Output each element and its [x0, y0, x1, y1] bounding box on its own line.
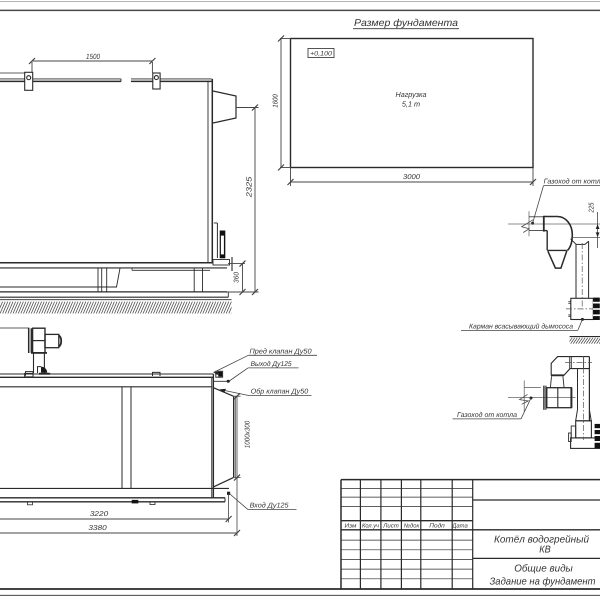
svg-text:1500: 1500: [86, 52, 101, 61]
svg-text:Лист: Лист: [382, 523, 399, 530]
svg-text:225: 225: [589, 202, 596, 213]
svg-text:Подп: Подп: [429, 523, 445, 530]
svg-text:3380: 3380: [88, 525, 106, 532]
svg-text:Общие виды: Общие виды: [514, 564, 573, 575]
svg-text:Задание на фундамент: Задание на фундамент: [490, 577, 596, 588]
svg-text:3000: 3000: [403, 174, 420, 181]
svg-text:Кол.уч: Кол.уч: [362, 523, 379, 530]
svg-text:+0,100: +0,100: [310, 51, 332, 58]
svg-text:Изм: Изм: [345, 523, 357, 530]
svg-text:Нагрузка: Нагрузка: [396, 90, 427, 99]
svg-text:Пред клапан Ду50: Пред клапан Ду50: [250, 348, 312, 356]
svg-text:5,1 т: 5,1 т: [402, 100, 420, 109]
svg-text:Дата: Дата: [451, 523, 468, 530]
svg-text:360: 360: [234, 272, 241, 283]
svg-text:Вход Ду125: Вход Ду125: [250, 502, 289, 510]
svg-text:3220: 3220: [90, 511, 108, 518]
svg-text:КВ: КВ: [539, 545, 551, 556]
svg-text:Газоход от котла: Газоход от котла: [544, 177, 600, 185]
svg-text:Размер фундамента: Размер фундамента: [354, 18, 458, 29]
svg-text:Обр клапан Ду50: Обр клапан Ду50: [251, 388, 309, 396]
svg-text:Карман всасывающий дымососа: Карман всасывающий дымососа: [469, 323, 573, 331]
svg-text:2325: 2325: [245, 176, 254, 199]
svg-text:Выход Ду125: Выход Ду125: [251, 360, 292, 368]
svg-text:1000х300: 1000х300: [245, 421, 252, 449]
svg-text:Газоход от котла: Газоход от котла: [457, 411, 517, 419]
svg-text:№док: №док: [404, 523, 421, 530]
svg-text:1600: 1600: [273, 94, 280, 108]
